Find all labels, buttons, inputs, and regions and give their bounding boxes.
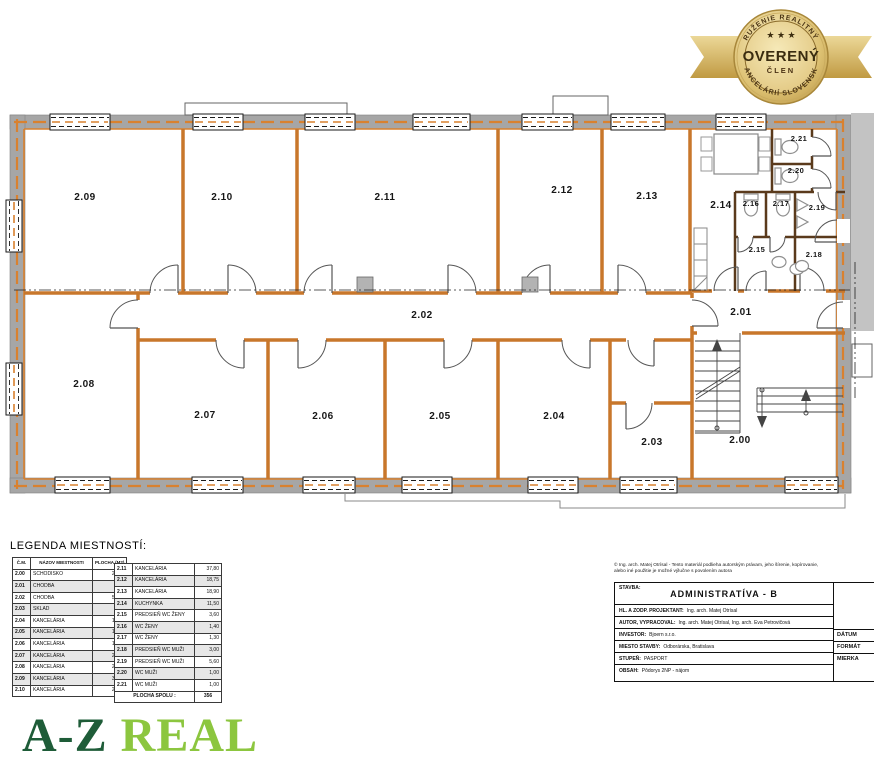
room-label-2-04: 2.04 bbox=[543, 411, 564, 422]
legend-row: 2.19PREDSIEŇ WC MUŽI5,60 bbox=[115, 656, 222, 668]
room-label-2-07: 2.07 bbox=[194, 410, 215, 421]
legend-cell: 2.06 bbox=[13, 639, 31, 651]
legend-header-cm: Č.M. bbox=[13, 558, 31, 570]
sink-icon bbox=[796, 261, 809, 272]
room-label-2-14: 2.14 bbox=[710, 200, 731, 211]
titleblock-value: Bjoern s.r.o. bbox=[649, 632, 676, 638]
legend-cell: 2.03 bbox=[13, 604, 31, 616]
screenshot-root: { "badge": { "arc_top": "ZDRUŽENIE REALI… bbox=[0, 0, 874, 768]
legend-cell: 2.20 bbox=[115, 668, 133, 680]
legend-cell: 2.19 bbox=[115, 656, 133, 668]
titleblock-row: AUTOR, VYPRACOVAL:Ing. arch. Matej Otrís… bbox=[615, 617, 833, 629]
titleblock-row: OBSAH:Pôdorys 2NP - nájom bbox=[615, 665, 833, 683]
titleblock-row: MIESTO STAVBY:Odborárska, Bratislava bbox=[615, 641, 833, 653]
legend-cell: 18,75 bbox=[195, 575, 222, 587]
legend-cell: PREDSIEŇ WC MUŽI bbox=[133, 656, 195, 668]
legend-cell: 2.13 bbox=[115, 587, 133, 599]
legend-cell: 2.16 bbox=[115, 621, 133, 633]
legend-cell: 2.01 bbox=[13, 581, 31, 593]
logo-part-real: REAL bbox=[121, 709, 258, 762]
legend-cell: KANCELÁRIA bbox=[31, 639, 93, 651]
doors bbox=[110, 137, 850, 429]
legend-row: 2.01CHODBA7,10 bbox=[13, 581, 127, 593]
legend-title: LEGENDA MIESTNOSTÍ: bbox=[10, 540, 147, 552]
room-label-2-18: 2.18 bbox=[806, 250, 823, 259]
legend-row: 2.13KANCELÁRIA18,90 bbox=[115, 587, 222, 599]
legend-cell: KANCELÁRIA bbox=[31, 627, 93, 639]
legend-cell: 37,80 bbox=[195, 564, 222, 576]
legend-header-nazov: NÁZOV MIESTNOSTI bbox=[31, 558, 93, 570]
legend-row: 2.11KANCELÁRIA37,80 bbox=[115, 564, 222, 576]
titleblock-label: MIESTO STAVBY: bbox=[619, 644, 660, 650]
sink-icon bbox=[772, 257, 786, 268]
legend-cell: 5,60 bbox=[195, 656, 222, 668]
titleblock-row: HL. A ZODP. PROJEKTANT:Ing. arch. Matej … bbox=[615, 605, 833, 617]
legend-cell: 1,40 bbox=[195, 621, 222, 633]
room-label-2-06: 2.06 bbox=[312, 411, 333, 422]
legend-row: 2.00SCHODISKO24,80 bbox=[13, 569, 127, 581]
room-label-2-13: 2.13 bbox=[636, 191, 657, 202]
titleblock-side-label: FORMÁT bbox=[834, 641, 874, 653]
titleblock-label: HL. A ZODP. PROJEKTANT: bbox=[619, 608, 684, 614]
copyright-line-2: alebo iné použitie je možné výlučne s po… bbox=[614, 569, 872, 575]
room-label-2-00: 2.00 bbox=[729, 435, 750, 446]
legend-table-left: Č.M. NÁZOV MIESTNOSTI PLOCHA (M2) 2.00SC… bbox=[12, 557, 127, 697]
copyright-note: © Ing. arch. Matej Otrísal - Tento mater… bbox=[614, 563, 872, 574]
legend-cell: KANCELÁRIA bbox=[31, 650, 93, 662]
legend-row: 2.21WC MUŽI1,00 bbox=[115, 679, 222, 691]
legend-row: 2.14KUCHYNKA11,50 bbox=[115, 598, 222, 610]
legend-row: 2.03SKLAD7,40 bbox=[13, 604, 127, 616]
verified-member-badge: ZDRUŽENIE REALITNÝCH ★ ★ ★ OVERENÝ ČLEN … bbox=[688, 2, 874, 106]
legend-cell: 3,60 bbox=[195, 610, 222, 622]
room-label-2-02: 2.02 bbox=[411, 310, 432, 321]
toilet-icon bbox=[775, 139, 781, 155]
legend-row: 2.02CHODBA56,80 bbox=[13, 592, 127, 604]
titleblock-label: AUTOR, VYPRACOVAL: bbox=[619, 620, 675, 626]
room-label-2-11: 2.11 bbox=[375, 192, 396, 203]
kitchen-table-icon bbox=[714, 134, 758, 174]
legend-cell: KANCELÁRIA bbox=[133, 564, 195, 576]
room-label-2-03: 2.03 bbox=[641, 437, 662, 448]
titleblock-value: PASPORT bbox=[644, 656, 667, 662]
stavba-label: STAVBA: bbox=[619, 585, 640, 591]
legend-row: 2.16WC ŽENY1,40 bbox=[115, 621, 222, 633]
chair-icon bbox=[759, 137, 770, 151]
legend-cell: KANCELÁRIA bbox=[133, 587, 195, 599]
legend-cell: 2.11 bbox=[115, 564, 133, 576]
fixtures bbox=[357, 134, 809, 292]
legend-cell: 2.05 bbox=[13, 627, 31, 639]
legend-cell: 2.17 bbox=[115, 633, 133, 645]
legend-cell: PREDSIEŇ WC ŽENY bbox=[133, 610, 195, 622]
legend-cell: PREDSIEŇ WC MUŽI bbox=[133, 645, 195, 657]
room-label-2-01: 2.01 bbox=[730, 307, 751, 318]
titleblock-row: STUPEŇ:PASPORT bbox=[615, 653, 833, 665]
room-label-2-08: 2.08 bbox=[73, 379, 94, 390]
legend-cell: 3,00 bbox=[195, 645, 222, 657]
titleblock-label: OBSAH: bbox=[619, 668, 639, 674]
legend-cell: WC ŽENY bbox=[133, 621, 195, 633]
legend-cell: KANCELÁRIA bbox=[31, 685, 93, 697]
legend-row: 2.17WC ŽENY1,30 bbox=[115, 633, 222, 645]
legend-cell: WC MUŽI bbox=[133, 679, 195, 691]
legend-cell: 2.00 bbox=[13, 569, 31, 581]
legend-cell: 11,50 bbox=[195, 598, 222, 610]
room-label-2-05: 2.05 bbox=[429, 411, 450, 422]
legend-cell: 1,00 bbox=[195, 668, 222, 680]
kitchen-counter-icon bbox=[694, 228, 707, 290]
legend-total-row: PLOCHA SPOLU :356 bbox=[115, 691, 222, 703]
urinal-icon bbox=[797, 199, 808, 211]
badge-title: OVERENÝ bbox=[743, 47, 820, 65]
legend-total-label: PLOCHA SPOLU : bbox=[115, 691, 195, 703]
legend-cell: KANCELÁRIA bbox=[31, 662, 93, 674]
titleblock-label: STUPEŇ: bbox=[619, 656, 641, 662]
chair-icon bbox=[759, 157, 770, 171]
legend-cell: 2.02 bbox=[13, 592, 31, 604]
chair-icon bbox=[701, 137, 712, 151]
legend-cell: KANCELÁRIA bbox=[31, 673, 93, 685]
titleblock-row-stavba: STAVBA: ADMINISTRATÍVA - B bbox=[615, 583, 833, 605]
chair-icon bbox=[701, 157, 712, 171]
titleblock-value: Ing. arch. Matej Otrísal bbox=[687, 608, 738, 614]
logo-part-az: A-Z bbox=[22, 709, 108, 762]
interior-walls bbox=[24, 129, 845, 479]
legend-cell: 2.21 bbox=[115, 679, 133, 691]
legend-cell: 18,90 bbox=[195, 587, 222, 599]
room-label-2-10: 2.10 bbox=[211, 192, 232, 203]
room-label-2-16: 2.16 bbox=[743, 199, 760, 208]
legend-cell: CHODBA bbox=[31, 592, 93, 604]
legend-cell: KANCELÁRIA bbox=[31, 615, 93, 627]
legend-row: 2.09KANCELÁRIA31,20 bbox=[13, 673, 127, 685]
legend-row: 2.05KANCELÁRIA19,00 bbox=[13, 627, 127, 639]
az-real-logo: A-Z REAL bbox=[22, 708, 258, 763]
legend-cell: KANCELÁRIA bbox=[133, 575, 195, 587]
titleblock-value: Odborárska, Bratislava bbox=[663, 644, 714, 650]
toilet-icon bbox=[775, 168, 781, 184]
legend-cell: WC ŽENY bbox=[133, 633, 195, 645]
urinal-icon bbox=[797, 216, 808, 228]
titleblock-value: Pôdorys 2NP - nájom bbox=[642, 668, 689, 674]
windows bbox=[6, 114, 838, 493]
legend-cell: 2.07 bbox=[13, 650, 31, 662]
legend-row: 2.18PREDSIEŇ WC MUŽI3,00 bbox=[115, 645, 222, 657]
legend-cell: 2.08 bbox=[13, 662, 31, 674]
legend-cell: SCHODISKO bbox=[31, 569, 93, 581]
legend-cell: 2.15 bbox=[115, 610, 133, 622]
room-label-2-09: 2.09 bbox=[74, 192, 95, 203]
legend-cell: 1,30 bbox=[195, 633, 222, 645]
legend-row: 2.06KANCELÁRIA18,50 bbox=[13, 639, 127, 651]
room-label-2-21: 2.21 bbox=[791, 134, 808, 143]
legend-row: 2.07KANCELÁRIA21,10 bbox=[13, 650, 127, 662]
legend-row: 2.04KANCELÁRIA19,20 bbox=[13, 615, 127, 627]
legend-row: 2.08KANCELÁRIA25,40 bbox=[13, 662, 127, 674]
legend-cell: 2.10 bbox=[13, 685, 31, 697]
legend-cell: SKLAD bbox=[31, 604, 93, 616]
project-title: ADMINISTRATÍVA - B bbox=[615, 583, 833, 605]
room-label-2-15: 2.15 bbox=[749, 245, 766, 254]
legend-header-row: Č.M. NÁZOV MIESTNOSTI PLOCHA (M2) bbox=[13, 558, 127, 570]
legend-cell: 1,00 bbox=[195, 679, 222, 691]
titleblock-row: INVESTOR:Bjoern s.r.o. bbox=[615, 629, 833, 641]
titleblock-side-label: MIERKA bbox=[834, 653, 874, 665]
legend-row: 2.10KANCELÁRIA21,40 bbox=[13, 685, 127, 697]
legend-table-right: 2.11KANCELÁRIA37,802.12KANCELÁRIA18,752.… bbox=[114, 563, 222, 703]
titleblock-value: Ing. arch. Matej Otrísal, Ing. arch. Eva… bbox=[678, 620, 790, 626]
room-label-2-17: 2.17 bbox=[773, 199, 790, 208]
legend-cell: WC MUŽI bbox=[133, 668, 195, 680]
badge-stars: ★ ★ ★ bbox=[766, 30, 795, 40]
titleblock-label: INVESTOR: bbox=[619, 632, 646, 638]
legend-cell: CHODBA bbox=[31, 581, 93, 593]
legend-row: 2.12KANCELÁRIA18,75 bbox=[115, 575, 222, 587]
legend-row: 2.15PREDSIEŇ WC ŽENY3,60 bbox=[115, 610, 222, 622]
staircase bbox=[695, 333, 843, 433]
room-label-2-20: 2.20 bbox=[788, 166, 805, 175]
room-label-2-19: 2.19 bbox=[809, 203, 826, 212]
legend-cell: 2.09 bbox=[13, 673, 31, 685]
legend-row: 2.20WC MUŽI1,00 bbox=[115, 668, 222, 680]
legend-cell: 2.18 bbox=[115, 645, 133, 657]
legend-cell: KUCHYNKA bbox=[133, 598, 195, 610]
legend-total-value: 356 bbox=[195, 691, 222, 703]
badge-subtitle: ČLEN bbox=[767, 66, 795, 75]
legend-cell: 2.12 bbox=[115, 575, 133, 587]
legend-cell: 2.14 bbox=[115, 598, 133, 610]
room-label-2-12: 2.12 bbox=[551, 185, 572, 196]
legend-cell: 2.04 bbox=[13, 615, 31, 627]
titleblock-side-label: DÁTUM bbox=[834, 629, 874, 641]
titleblock-side-column: DÁTUMFORMÁTMIERKA bbox=[833, 583, 874, 681]
title-block: STAVBA: ADMINISTRATÍVA - B HL. A ZODP. P… bbox=[614, 582, 874, 682]
